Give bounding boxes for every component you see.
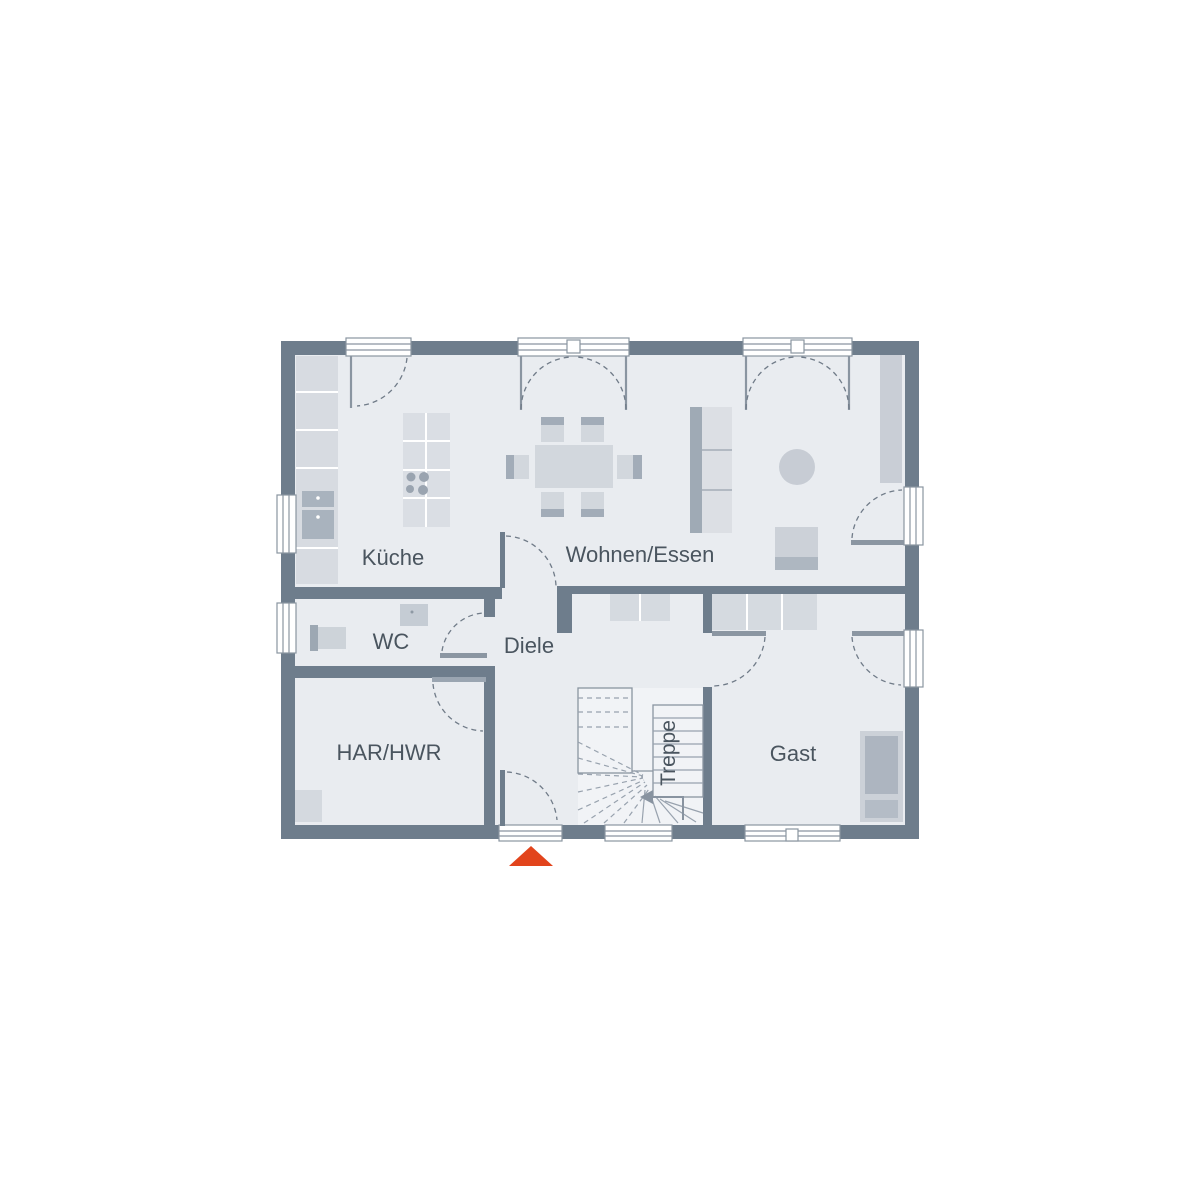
har-door-leaf xyxy=(432,677,486,682)
cabinet-back xyxy=(690,407,702,533)
toilet-icon xyxy=(310,625,318,651)
kitchen-hall-door-leaf xyxy=(500,532,505,588)
furniture-gast xyxy=(860,731,903,822)
room-label-wc: WC xyxy=(373,629,410,654)
wc-door-leaf xyxy=(440,653,487,658)
cabinet-body xyxy=(702,407,732,533)
terrace-door-leaf xyxy=(851,540,904,545)
terrace-door-window xyxy=(904,487,923,545)
room-label-har-hwr: HAR/HWR xyxy=(336,740,441,765)
entrance-door-threshold xyxy=(499,825,562,841)
kitchen-counter xyxy=(296,356,338,584)
window-gast-right xyxy=(904,630,923,687)
room-label-wohnen-essen: Wohnen/Essen xyxy=(566,542,715,567)
gast-door-leaf xyxy=(712,631,766,636)
round-table xyxy=(779,449,815,485)
room-label-diele: Diele xyxy=(504,633,554,658)
sideboard xyxy=(880,353,902,483)
gast-window-leaf xyxy=(852,631,904,636)
window-kitchen-left xyxy=(277,495,296,553)
french-door-dining xyxy=(518,338,629,356)
entrance-marker-icon xyxy=(509,846,553,866)
sink-icon xyxy=(400,604,428,626)
room-label-treppe: Treppe xyxy=(657,720,680,786)
dining-table xyxy=(535,445,613,488)
furniture-har xyxy=(294,790,322,822)
french-door-living xyxy=(743,338,852,356)
room-label-gast: Gast xyxy=(770,741,816,766)
window-kitchen-top xyxy=(346,338,411,356)
gast-wardrobe xyxy=(712,594,817,630)
utility-unit xyxy=(294,790,322,822)
kitchen-oven-icon xyxy=(302,510,334,539)
floor-plan-svg: Küche Wohnen/Essen WC Diele HAR/HWR Gast… xyxy=(0,0,1200,1200)
floor-plan-page: Küche Wohnen/Essen WC Diele HAR/HWR Gast… xyxy=(0,0,1200,1200)
room-label-kueche: Küche xyxy=(362,545,424,570)
window-gast-bottom xyxy=(745,825,840,841)
window-stairs xyxy=(605,825,672,841)
window-wc xyxy=(277,603,296,653)
entrance-door-leaf xyxy=(500,770,505,826)
